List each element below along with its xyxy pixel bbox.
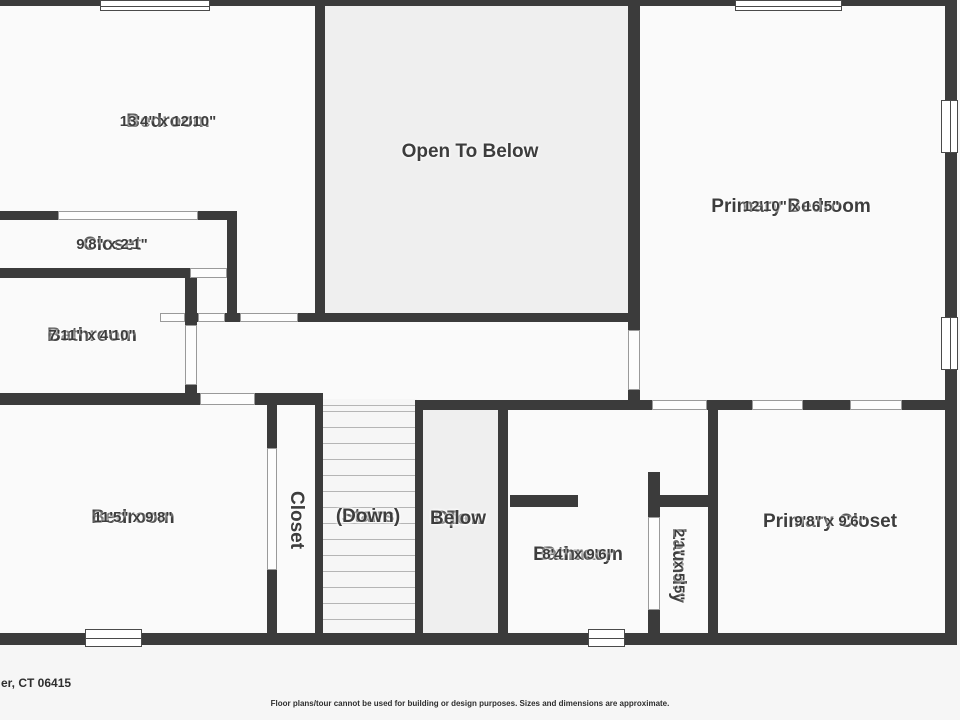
wall	[0, 268, 190, 278]
door-opening	[185, 325, 197, 385]
room-dimensions: 9'8" x 2'1"	[76, 236, 147, 254]
door-opening	[200, 393, 255, 405]
wall	[415, 400, 652, 410]
wall	[628, 0, 640, 330]
wall	[708, 400, 718, 645]
door-opening	[190, 268, 227, 278]
wall	[185, 278, 197, 325]
wall	[0, 393, 200, 405]
room-dimensions: 8'4" x 9'6"	[542, 546, 613, 564]
address-text: er, CT 06415	[1, 676, 71, 690]
wall	[315, 0, 325, 322]
room-name: Closet	[284, 491, 308, 549]
wall	[255, 393, 322, 405]
wall	[415, 400, 423, 645]
stair-tread	[323, 603, 415, 604]
room-name: (Down)	[336, 506, 400, 528]
stair-tread	[323, 539, 415, 540]
door-opening	[652, 400, 707, 410]
stair-tread	[323, 405, 415, 406]
window-frame-line	[101, 6, 209, 7]
wall	[225, 313, 240, 322]
room-dimensions: 11'5" x 9'8"	[94, 509, 173, 527]
room-dimensions: 9'8" x 9'6"	[794, 513, 865, 531]
wall	[648, 472, 660, 517]
stair-tread	[323, 491, 415, 492]
wall	[498, 400, 508, 645]
wall	[185, 385, 197, 395]
floor-plan: Bedroom13'4" x 12'10"Open To BelowPrimar…	[0, 0, 960, 720]
door-opening	[240, 313, 298, 322]
room-name: Below	[430, 508, 486, 530]
stair-tread	[323, 459, 415, 460]
wall	[267, 570, 277, 645]
wall	[298, 313, 628, 322]
stair-tread	[323, 475, 415, 476]
room-dimensions: 7'11" x 4'10"	[48, 327, 135, 345]
wall	[0, 633, 957, 645]
stair-tread	[323, 619, 415, 620]
room-dimensions: 13'4" x 12'10"	[120, 113, 216, 131]
door-opening	[160, 313, 185, 322]
window-frame-line	[86, 638, 141, 639]
wall	[510, 495, 578, 507]
wall	[227, 211, 237, 313]
window-frame-line	[950, 318, 951, 369]
wall	[803, 400, 850, 410]
stair-tread	[323, 555, 415, 556]
door-opening	[628, 330, 640, 390]
door-opening	[648, 517, 660, 610]
door-opening	[58, 211, 198, 220]
room-dimensions: 2'1" x 5'5"	[669, 529, 688, 600]
door-opening	[267, 448, 277, 570]
window-frame-line	[950, 101, 951, 152]
floor-plan-screenshot: Bedroom13'4" x 12'10"Open To BelowPrimar…	[0, 0, 960, 720]
stair-tread	[323, 411, 415, 412]
door-opening	[850, 400, 902, 410]
window-frame-line	[736, 6, 841, 7]
wall	[648, 610, 660, 645]
wall	[628, 390, 640, 410]
stair-tread	[323, 587, 415, 588]
room-dimensions: 12'10" x 16'5"	[743, 198, 839, 216]
wall	[315, 393, 323, 645]
stair-tread	[323, 427, 415, 428]
stair-tread	[323, 443, 415, 444]
disclaimer-text: Floor plans/tour cannot be used for buil…	[0, 699, 940, 708]
door-opening	[752, 400, 803, 410]
stair-tread	[323, 571, 415, 572]
window-frame-line	[589, 638, 624, 639]
door-opening	[198, 313, 225, 322]
room-name: Open To Below	[402, 141, 539, 163]
wall	[267, 393, 277, 448]
